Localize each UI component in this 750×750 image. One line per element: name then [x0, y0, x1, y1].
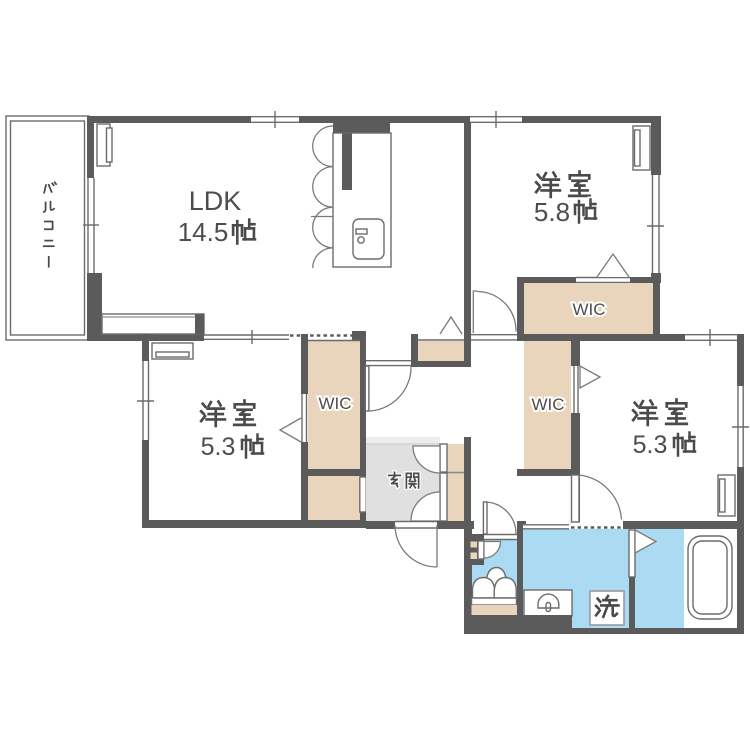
svg-text:LDK: LDK — [189, 186, 242, 216]
svg-text:5.3: 5.3 — [201, 433, 236, 461]
svg-text:WIC: WIC — [572, 300, 605, 319]
svg-text:5.3: 5.3 — [633, 431, 668, 459]
svg-text:14.5: 14.5 — [178, 217, 229, 247]
svg-text:WIC: WIC — [318, 394, 351, 413]
svg-text:WIC: WIC — [531, 395, 564, 414]
svg-text:5.8: 5.8 — [534, 197, 570, 227]
